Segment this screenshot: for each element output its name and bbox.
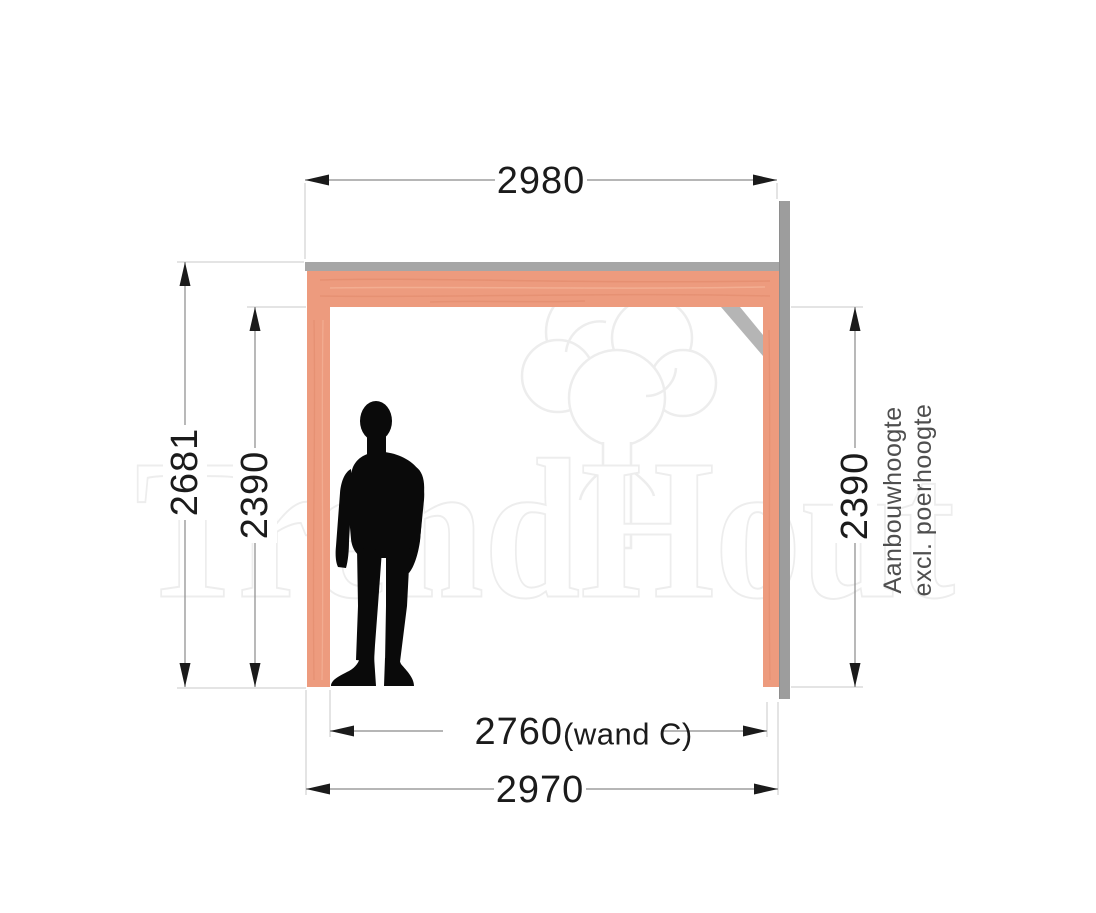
- figure-left-foot: [331, 656, 376, 686]
- dim-arrow-up-icon: [180, 262, 191, 286]
- grain-line: [322, 320, 323, 680]
- top-plate: [305, 262, 779, 271]
- dim-arrow-down-icon: [850, 663, 861, 687]
- dim-arrow-right-icon: [754, 784, 778, 795]
- dim-bottom-total-width: 2970: [306, 769, 778, 811]
- grain-line: [330, 287, 765, 288]
- dim-arrow-left-icon: [305, 175, 329, 186]
- wall-profile: [779, 201, 790, 699]
- dim-arrow-left-icon: [330, 726, 354, 737]
- dim-arrow-right-icon: [753, 175, 777, 186]
- note-line-1: Aanbouwhoogte: [879, 406, 907, 593]
- corner-brace: [721, 307, 763, 356]
- dim-left-total-height-label: 2681: [164, 428, 206, 517]
- note-line-2: excl. poerhoogte: [909, 404, 937, 597]
- dim-arrow-down-icon: [250, 663, 261, 687]
- dim-arrow-left-icon: [306, 784, 330, 795]
- dim-bottom-total-width-label: 2970: [496, 769, 585, 811]
- drawing-canvas: TrendHout: [0, 0, 1096, 913]
- dim-bottom-wall-width-label: 2760: [474, 711, 563, 753]
- right-post: [763, 307, 779, 687]
- dim-bottom-wall-width: 2760 (wand C): [330, 711, 767, 753]
- left-post: [307, 307, 330, 687]
- dim-right-clear-height-label: 2390: [834, 452, 876, 541]
- dim-arrow-up-icon: [250, 307, 261, 331]
- technical-drawing: TrendHout: [0, 0, 1096, 913]
- dim-arrow-up-icon: [850, 307, 861, 331]
- dim-bottom-wall-width-suffix: (wand C): [563, 717, 693, 752]
- dim-left-clear-height-label: 2390: [234, 451, 276, 540]
- grain-line: [430, 301, 585, 302]
- figure-right-leg: [385, 548, 410, 663]
- dim-top-width-label: 2980: [497, 160, 586, 202]
- grain-line: [769, 330, 770, 680]
- dim-arrow-down-icon: [180, 663, 191, 687]
- figure-right-foot: [384, 657, 414, 686]
- dim-top-width: 2980: [305, 160, 777, 202]
- dim-arrow-right-icon: [743, 726, 767, 737]
